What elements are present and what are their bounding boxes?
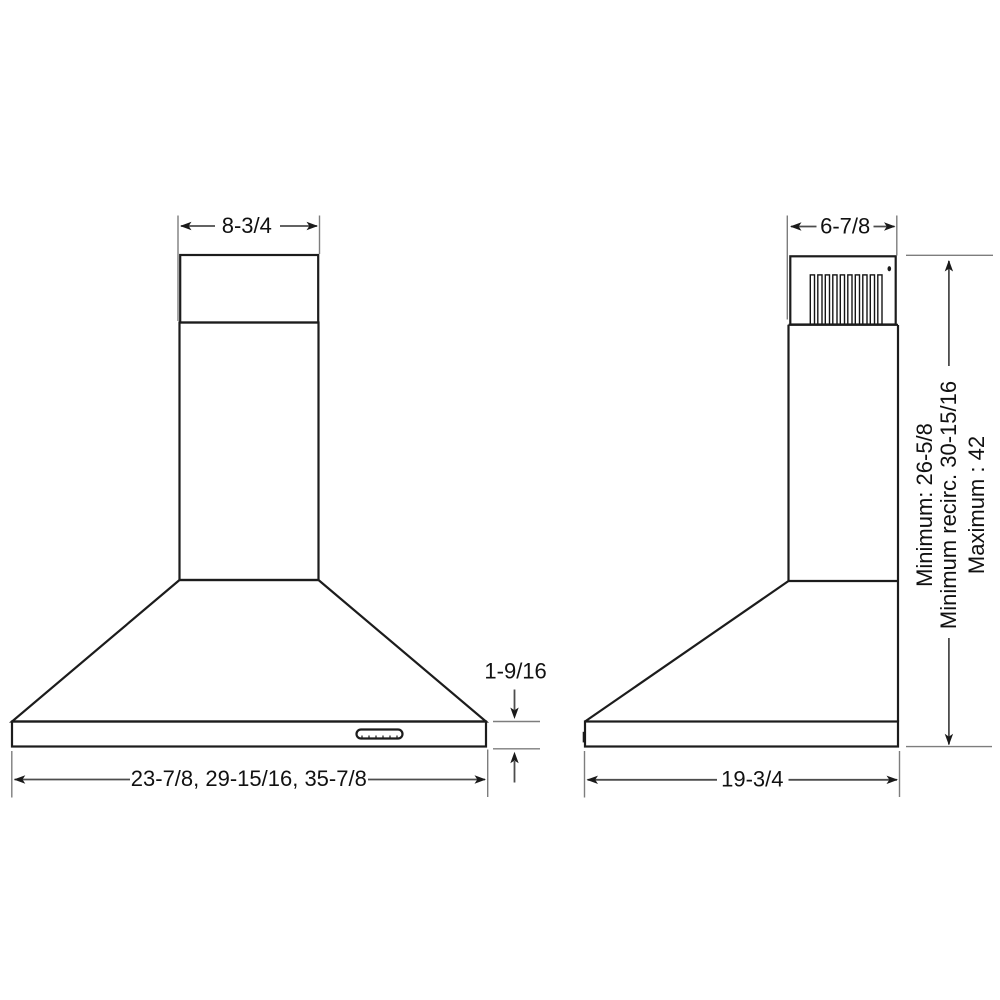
- svg-text:1-9/16: 1-9/16: [484, 659, 546, 684]
- svg-text:Minimum recirc. 30-15/16: Minimum recirc. 30-15/16: [936, 381, 961, 629]
- svg-text:19-3/4: 19-3/4: [721, 766, 783, 791]
- svg-text:8-3/4: 8-3/4: [222, 213, 272, 238]
- svg-text:6-7/8: 6-7/8: [820, 214, 870, 239]
- svg-text:Minimum: 26-5/8: Minimum: 26-5/8: [912, 423, 937, 587]
- svg-text:23-7/8, 29-15/16, 35-7/8: 23-7/8, 29-15/16, 35-7/8: [131, 766, 367, 791]
- svg-text:Maximum : 42: Maximum : 42: [964, 436, 989, 574]
